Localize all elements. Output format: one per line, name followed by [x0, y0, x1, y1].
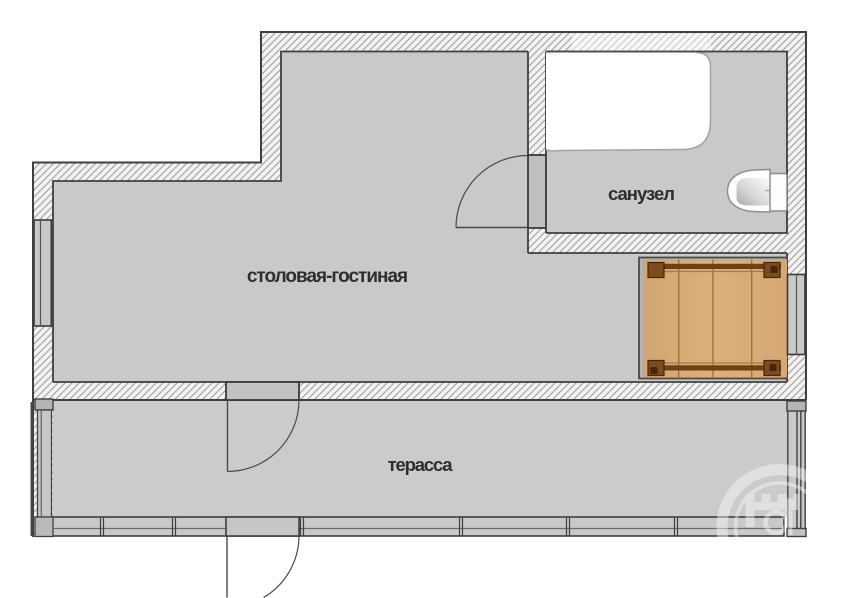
svg-text:санузел: санузел — [608, 183, 674, 204]
svg-text:терасса: терасса — [388, 454, 454, 475]
svg-text:столовая-гостиная: столовая-гостиная — [247, 266, 407, 287]
